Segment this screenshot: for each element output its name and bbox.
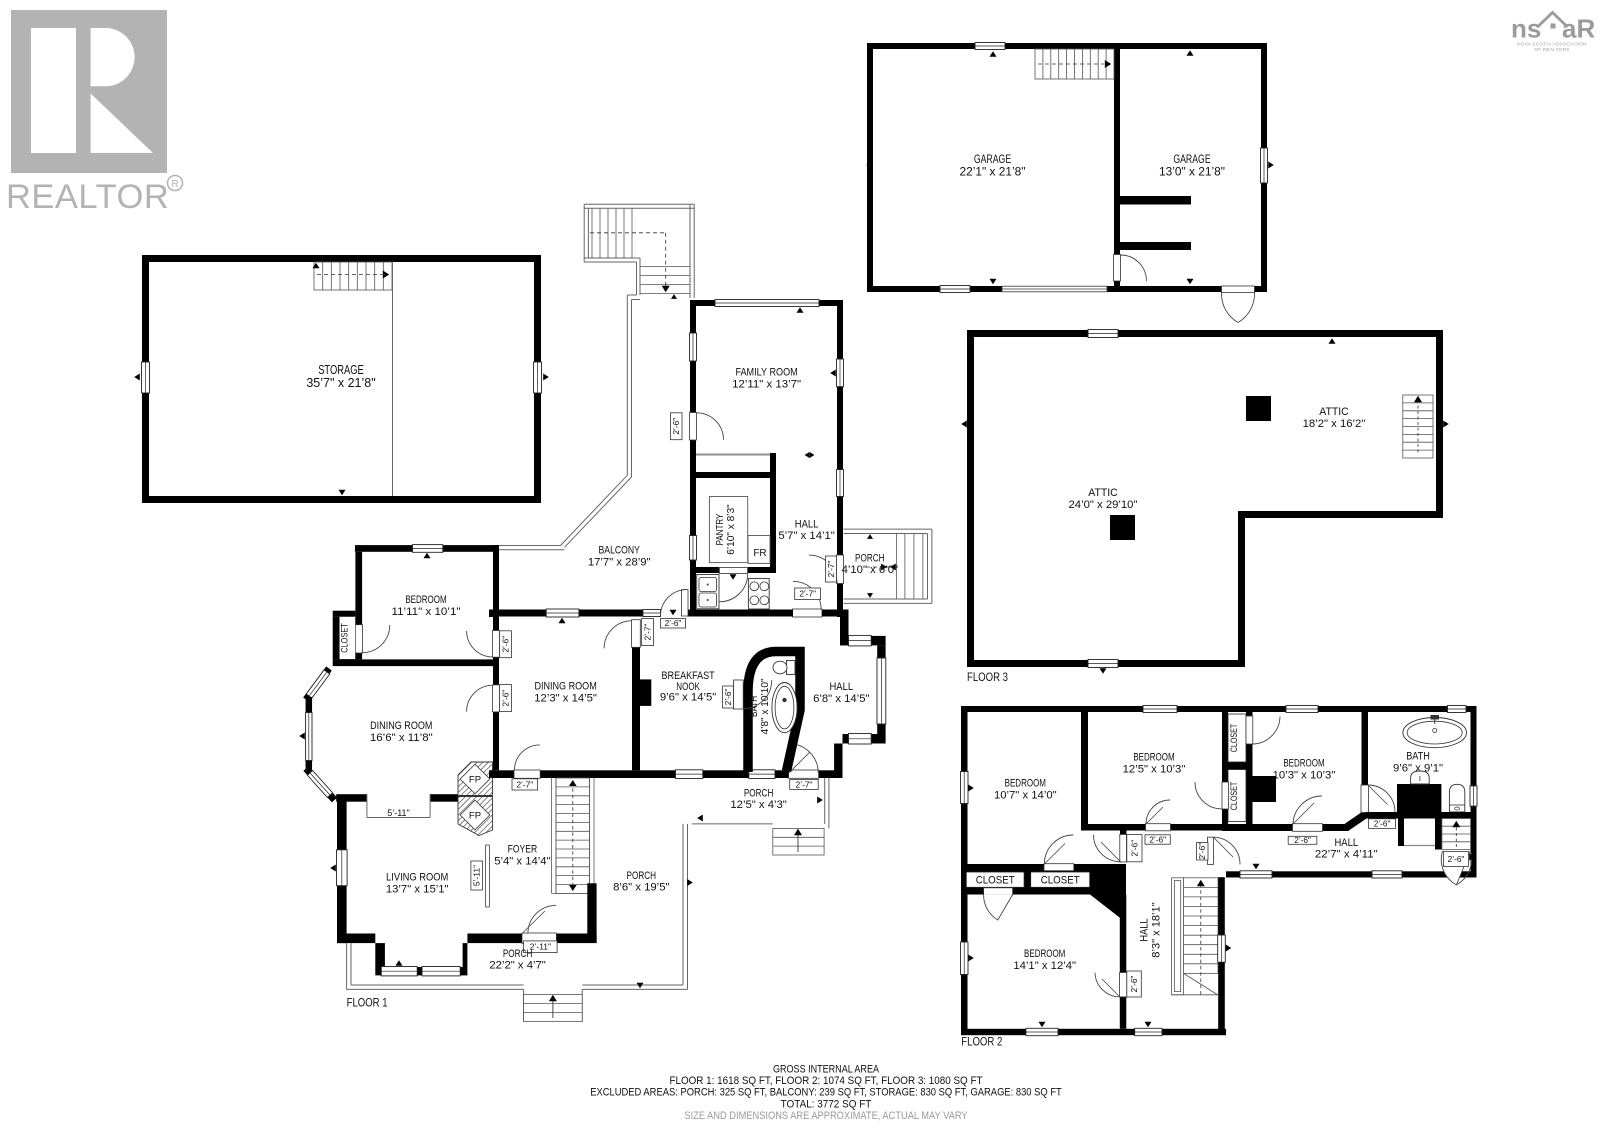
svg-text:BEDROOM: BEDROOM (1024, 948, 1065, 960)
svg-text:CLOSET: CLOSET (1229, 723, 1239, 752)
svg-text:LIVING ROOM: LIVING ROOM (386, 872, 448, 884)
svg-text:2’-6": 2’-6" (671, 418, 681, 435)
svg-text:FP: FP (469, 775, 481, 786)
svg-text:REALTOR: REALTOR (6, 178, 169, 216)
svg-text:2’-7": 2’-7" (642, 624, 652, 641)
svg-text:22’7" x 4’11": 22’7" x 4’11" (1315, 848, 1378, 860)
svg-text:2’-6": 2’-6" (501, 636, 511, 653)
svg-text:18’2" x 16’2": 18’2" x 16’2" (1303, 418, 1366, 430)
svg-text:5’-11": 5’-11" (387, 808, 410, 818)
svg-text:6’10" x 8’3": 6’10" x 8’3" (726, 504, 737, 555)
svg-text:2’-6": 2’-6" (1294, 835, 1311, 845)
svg-text:NOVA SCOTIA ASSOCIATION: NOVA SCOTIA ASSOCIATION (1517, 42, 1587, 47)
svg-text:24’0" x 29’10": 24’0" x 29’10" (1069, 499, 1138, 511)
svg-text:PORCH: PORCH (503, 948, 533, 960)
svg-text:HALL: HALL (1335, 837, 1359, 849)
svg-text:FP: FP (469, 811, 481, 822)
svg-text:13’0" x 21’8": 13’0" x 21’8" (1159, 165, 1225, 179)
svg-text:ATTIC: ATTIC (1088, 487, 1118, 499)
svg-text:DINING ROOM: DINING ROOM (370, 720, 432, 732)
svg-text:BEDROOM: BEDROOM (405, 594, 446, 606)
svg-text:GROSS INTERNAL AREA: GROSS INTERNAL AREA (773, 1064, 879, 1076)
svg-text:2’-7": 2’-7" (826, 561, 836, 578)
svg-text:12’3" x 14’5": 12’3" x 14’5" (534, 693, 597, 705)
svg-text:BEDROOM: BEDROOM (1283, 758, 1324, 770)
svg-text:2’-7": 2’-7" (796, 779, 813, 789)
svg-text:5’-11": 5’-11" (472, 865, 482, 886)
svg-text:FAMILY ROOM: FAMILY ROOM (735, 367, 797, 379)
svg-text:BEDROOM: BEDROOM (1133, 752, 1174, 764)
svg-text:17’7" x 28’9": 17’7" x 28’9" (588, 557, 651, 569)
svg-text:BEDROOM: BEDROOM (1005, 778, 1046, 790)
svg-text:13’7" x 15’1": 13’7" x 15’1" (386, 884, 449, 896)
svg-text:EXCLUDED AREAS: PORCH: 325 SQ: EXCLUDED AREAS: PORCH: 325 SQ FT, BALCON… (590, 1087, 1062, 1099)
svg-text:4’10" x 6’0": 4’10" x 6’0" (842, 564, 898, 576)
svg-text:FOYER: FOYER (508, 844, 538, 856)
svg-text:2’-6": 2’-6" (1149, 834, 1166, 844)
svg-text:FLOOR 1: FLOOR 1 (347, 996, 388, 1010)
svg-text:PORCH: PORCH (744, 788, 774, 800)
svg-text:2’-6": 2’-6" (1197, 843, 1207, 860)
svg-text:FLOOR 3: FLOOR 3 (967, 670, 1008, 684)
svg-text:6’8" x 14’5": 6’8" x 14’5" (813, 693, 869, 705)
svg-text:2’-7": 2’-7" (516, 779, 533, 789)
svg-text:PORCH: PORCH (627, 870, 657, 882)
svg-text:ATTIC: ATTIC (1319, 406, 1349, 418)
svg-text:2’-6": 2’-6" (1448, 854, 1465, 864)
svg-text:SIZE AND DIMENSIONS ARE APPROX: SIZE AND DIMENSIONS ARE APPROXIMATE, ACT… (684, 1110, 968, 1122)
svg-text:22’2" x 4’7": 22’2" x 4’7" (489, 959, 545, 971)
svg-text:OF REALTORS: OF REALTORS (1534, 47, 1569, 52)
svg-text:22’1" x 21’8": 22’1" x 21’8" (960, 165, 1026, 179)
svg-text:CLOSET: CLOSET (1041, 875, 1080, 887)
svg-text:2’-6": 2’-6" (723, 689, 733, 706)
svg-text:2’-7": 2’-7" (799, 589, 816, 599)
svg-text:4’8" x 10’10": 4’8" x 10’10" (760, 678, 771, 734)
svg-text:5’7" x 14’1": 5’7" x 14’1" (778, 530, 834, 542)
svg-text:12’5" x 4’3": 12’5" x 4’3" (730, 799, 786, 811)
svg-text:PORCH: PORCH (855, 553, 885, 565)
svg-text:5’4" x 14’4": 5’4" x 14’4" (494, 856, 550, 868)
svg-text:STORAGE: STORAGE (318, 363, 364, 377)
svg-text:14’1" x 12’4": 14’1" x 12’4" (1013, 960, 1076, 972)
svg-text:2’-6": 2’-6" (1374, 819, 1391, 829)
svg-text:12’5" x 10’3": 12’5" x 10’3" (1123, 764, 1186, 776)
svg-text:HALL: HALL (795, 519, 819, 531)
svg-text:2’-6": 2’-6" (1129, 976, 1139, 993)
svg-text:8’6" x 19’5": 8’6" x 19’5" (613, 881, 669, 893)
svg-text:FR: FR (753, 548, 766, 559)
svg-text:CLOSET: CLOSET (1229, 781, 1239, 810)
svg-text:10’7" x 14’0": 10’7" x 14’0" (994, 790, 1057, 802)
svg-text:HALL: HALL (830, 681, 854, 693)
svg-text:HALL: HALL (1138, 918, 1150, 941)
svg-text:BATH: BATH (749, 696, 760, 717)
svg-text:DINING ROOM: DINING ROOM (534, 681, 596, 693)
svg-text:CLOSET: CLOSET (976, 875, 1015, 887)
svg-text:FLOOR 1: 1618 SQ FT, FLOOR 2:: FLOOR 1: 1618 SQ FT, FLOOR 2: 1074 SQ FT… (669, 1075, 982, 1087)
svg-text:BALCONY: BALCONY (599, 545, 641, 557)
svg-text:aR: aR (1562, 14, 1595, 44)
svg-text:10’3" x 10’3": 10’3" x 10’3" (1273, 770, 1336, 782)
svg-text:8’3" x 18’1": 8’3" x 18’1" (1151, 902, 1163, 957)
svg-text:R: R (171, 179, 178, 190)
svg-text:9’6" x 14’5": 9’6" x 14’5" (660, 692, 716, 704)
svg-text:35’7" x 21’8": 35’7" x 21’8" (306, 376, 375, 390)
svg-text:FLOOR 2: FLOOR 2 (961, 1035, 1002, 1049)
svg-text:TOTAL: 3772 SQ FT: TOTAL: 3772 SQ FT (781, 1098, 872, 1110)
svg-text:16’6" x 11’8": 16’6" x 11’8" (370, 732, 433, 744)
svg-text:12’11" x 13’7": 12’11" x 13’7" (732, 379, 801, 391)
svg-text:2’-6": 2’-6" (500, 690, 510, 707)
svg-text:PANTRY: PANTRY (715, 513, 726, 545)
svg-text:2’-6": 2’-6" (665, 618, 682, 628)
svg-text:CLOSET: CLOSET (340, 623, 351, 653)
svg-text:BATH: BATH (1406, 751, 1430, 763)
svg-text:2’-11": 2’-11" (530, 942, 551, 952)
svg-text:11’11" x 10’1": 11’11" x 10’1" (392, 606, 461, 618)
svg-text:ns: ns (1511, 14, 1541, 44)
svg-text:2’-6": 2’-6" (1129, 840, 1139, 857)
